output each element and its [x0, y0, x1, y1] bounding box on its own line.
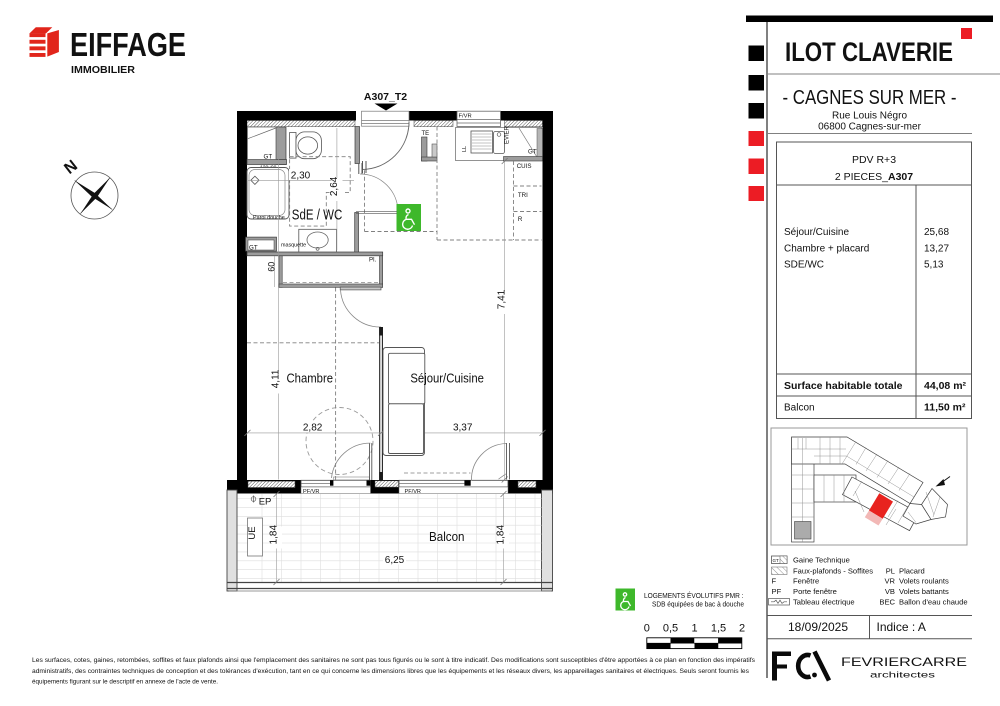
svg-text:GT: GT [264, 154, 273, 161]
svg-text:2: 2 [739, 623, 745, 635]
svg-text:4,11: 4,11 [270, 369, 281, 388]
svg-text:2,64: 2,64 [329, 176, 340, 196]
svg-text:Les surfaces, cotes, gaines, r: Les surfaces, cotes, gaines, retombées, … [32, 657, 756, 664]
svg-text:Pl.: Pl. [369, 257, 377, 264]
svg-text:Porte fenêtre: Porte fenêtre [793, 587, 837, 596]
svg-text:44,08 m²: 44,08 m² [924, 380, 967, 392]
svg-text:R: R [518, 216, 523, 223]
svg-text:Séjour/Cuisine: Séjour/Cuisine [784, 227, 849, 238]
svg-text:0,5: 0,5 [663, 623, 678, 635]
svg-text:60: 60 [267, 262, 277, 272]
svg-text:PF/VR: PF/VR [405, 489, 421, 495]
svg-text:Surface habitable totale: Surface habitable totale [784, 380, 903, 392]
svg-text:architectes: architectes [870, 670, 935, 680]
svg-text:Fenêtre: Fenêtre [793, 577, 819, 586]
svg-text:CUIS: CUIS [517, 163, 532, 170]
svg-text:BEC: BEC [879, 598, 895, 607]
svg-text:2 PIECES_A307: 2 PIECES_A307 [835, 171, 913, 183]
svg-text:1: 1 [691, 623, 697, 635]
svg-text:GT: GT [528, 149, 537, 156]
svg-text:25,68: 25,68 [924, 227, 949, 238]
svg-text:PF: PF [772, 587, 782, 596]
svg-text:3,37: 3,37 [453, 423, 473, 434]
svg-text:2,82: 2,82 [303, 423, 323, 434]
svg-text:1,5: 1,5 [711, 623, 726, 635]
svg-text:Volets roulants: Volets roulants [899, 577, 949, 586]
svg-text:FEVRIERCARRE: FEVRIERCARRE [841, 657, 967, 669]
svg-text:équipements figurant sur le de: équipements figurant sur le descriptif e… [32, 679, 218, 686]
svg-text:PF/VR: PF/VR [303, 489, 319, 495]
svg-text:F: F [772, 577, 777, 586]
svg-text:6,25: 6,25 [385, 555, 405, 566]
svg-text:0: 0 [644, 623, 650, 635]
svg-text:Ballon d'eau chaude: Ballon d'eau chaude [899, 598, 968, 607]
svg-text:- CAGNES SUR MER -: - CAGNES SUR MER - [783, 86, 957, 109]
svg-text:EP: EP [259, 497, 272, 508]
svg-text:ILOT CLAVERIE: ILOT CLAVERIE [785, 37, 953, 67]
svg-text:18/09/2025: 18/09/2025 [788, 620, 848, 634]
svg-text:06800 Cagnes-sur-mer: 06800 Cagnes-sur-mer [818, 122, 921, 133]
svg-text:VR: VR [884, 577, 895, 586]
svg-text:TE: TE [422, 131, 430, 137]
svg-text:EVIER: EVIER [505, 125, 511, 144]
svg-text:1,84: 1,84 [496, 525, 507, 545]
svg-text:Balcon: Balcon [429, 529, 465, 544]
svg-text:Tableau électrique: Tableau électrique [793, 598, 855, 607]
svg-text:LOGEMENTS ÉVOLUTIFS PMR :: LOGEMENTS ÉVOLUTIFS PMR : [644, 591, 744, 600]
svg-text:masquette: masquette [281, 242, 306, 248]
svg-text:A307_T2: A307_T2 [364, 91, 407, 103]
svg-text:Chambre: Chambre [287, 371, 334, 386]
svg-text:Indice : A: Indice : A [877, 620, 926, 634]
svg-text:Gaine Technique: Gaine Technique [793, 556, 850, 565]
svg-text:F/VR: F/VR [459, 114, 472, 120]
svg-text:Faux-plafonds - Soffites: Faux-plafonds - Soffites [793, 567, 873, 576]
svg-text:Volets battants: Volets battants [899, 587, 949, 596]
svg-text:UE: UE [247, 526, 258, 539]
svg-text:IMMOBILIER: IMMOBILIER [71, 64, 135, 76]
svg-text:EIFFAGE: EIFFAGE [70, 26, 186, 63]
svg-text:PDV R+3: PDV R+3 [852, 154, 896, 166]
svg-text:7,41: 7,41 [497, 289, 508, 309]
svg-text:Séjour/Cuisine: Séjour/Cuisine [410, 370, 484, 385]
svg-text:Placard: Placard [899, 567, 925, 576]
svg-text:Balcon: Balcon [784, 403, 815, 414]
svg-text:2,30: 2,30 [291, 171, 311, 182]
svg-text:13,27: 13,27 [924, 244, 949, 255]
svg-text:GT: GT [249, 245, 258, 252]
svg-text:SDB équipées de bac à douche: SDB équipées de bac à douche [652, 602, 744, 609]
svg-text:LL: LL [462, 146, 468, 152]
svg-text:1,84: 1,84 [269, 525, 280, 545]
svg-text:TRI: TRI [518, 192, 528, 199]
svg-text:SdE / WC: SdE / WC [292, 207, 343, 224]
svg-text:VB: VB [885, 587, 895, 596]
svg-text:11,50 m²: 11,50 m² [924, 402, 966, 414]
svg-text:PL: PL [886, 567, 895, 576]
svg-text:Rue Louis Négro: Rue Louis Négro [832, 111, 907, 122]
svg-text:5,13: 5,13 [924, 260, 944, 271]
svg-text:Paroi douche: Paroi douche [253, 215, 285, 221]
svg-text:administratifs, des contrainte: administratifs, des contraintes techniqu… [32, 668, 750, 675]
svg-text:GT: GT [773, 558, 780, 563]
svg-text:Chambre + placard: Chambre + placard [784, 244, 869, 255]
svg-text:SDE/WC: SDE/WC [784, 260, 824, 271]
